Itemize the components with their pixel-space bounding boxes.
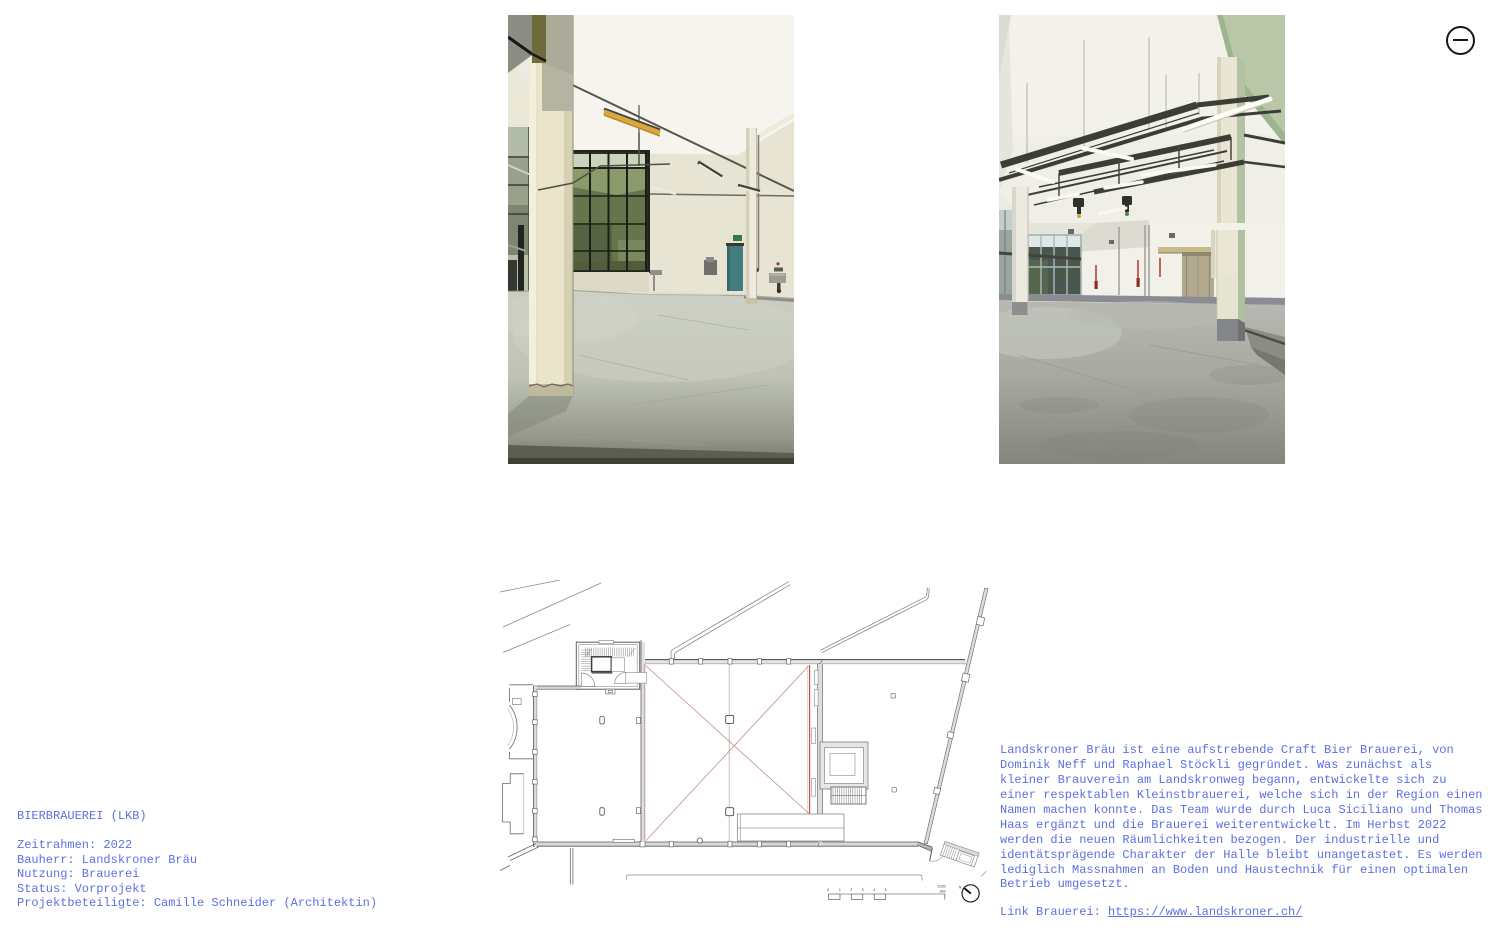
svg-text:5: 5	[885, 888, 887, 892]
svg-text:3: 3	[862, 888, 864, 892]
svg-text:1: 1	[839, 888, 841, 892]
svg-text:0: 0	[827, 888, 829, 892]
svg-text:1/100: 1/100	[938, 885, 946, 889]
svg-text:4: 4	[873, 888, 875, 892]
svg-text:2: 2	[850, 888, 852, 892]
svg-text:10m: 10m	[940, 890, 947, 894]
